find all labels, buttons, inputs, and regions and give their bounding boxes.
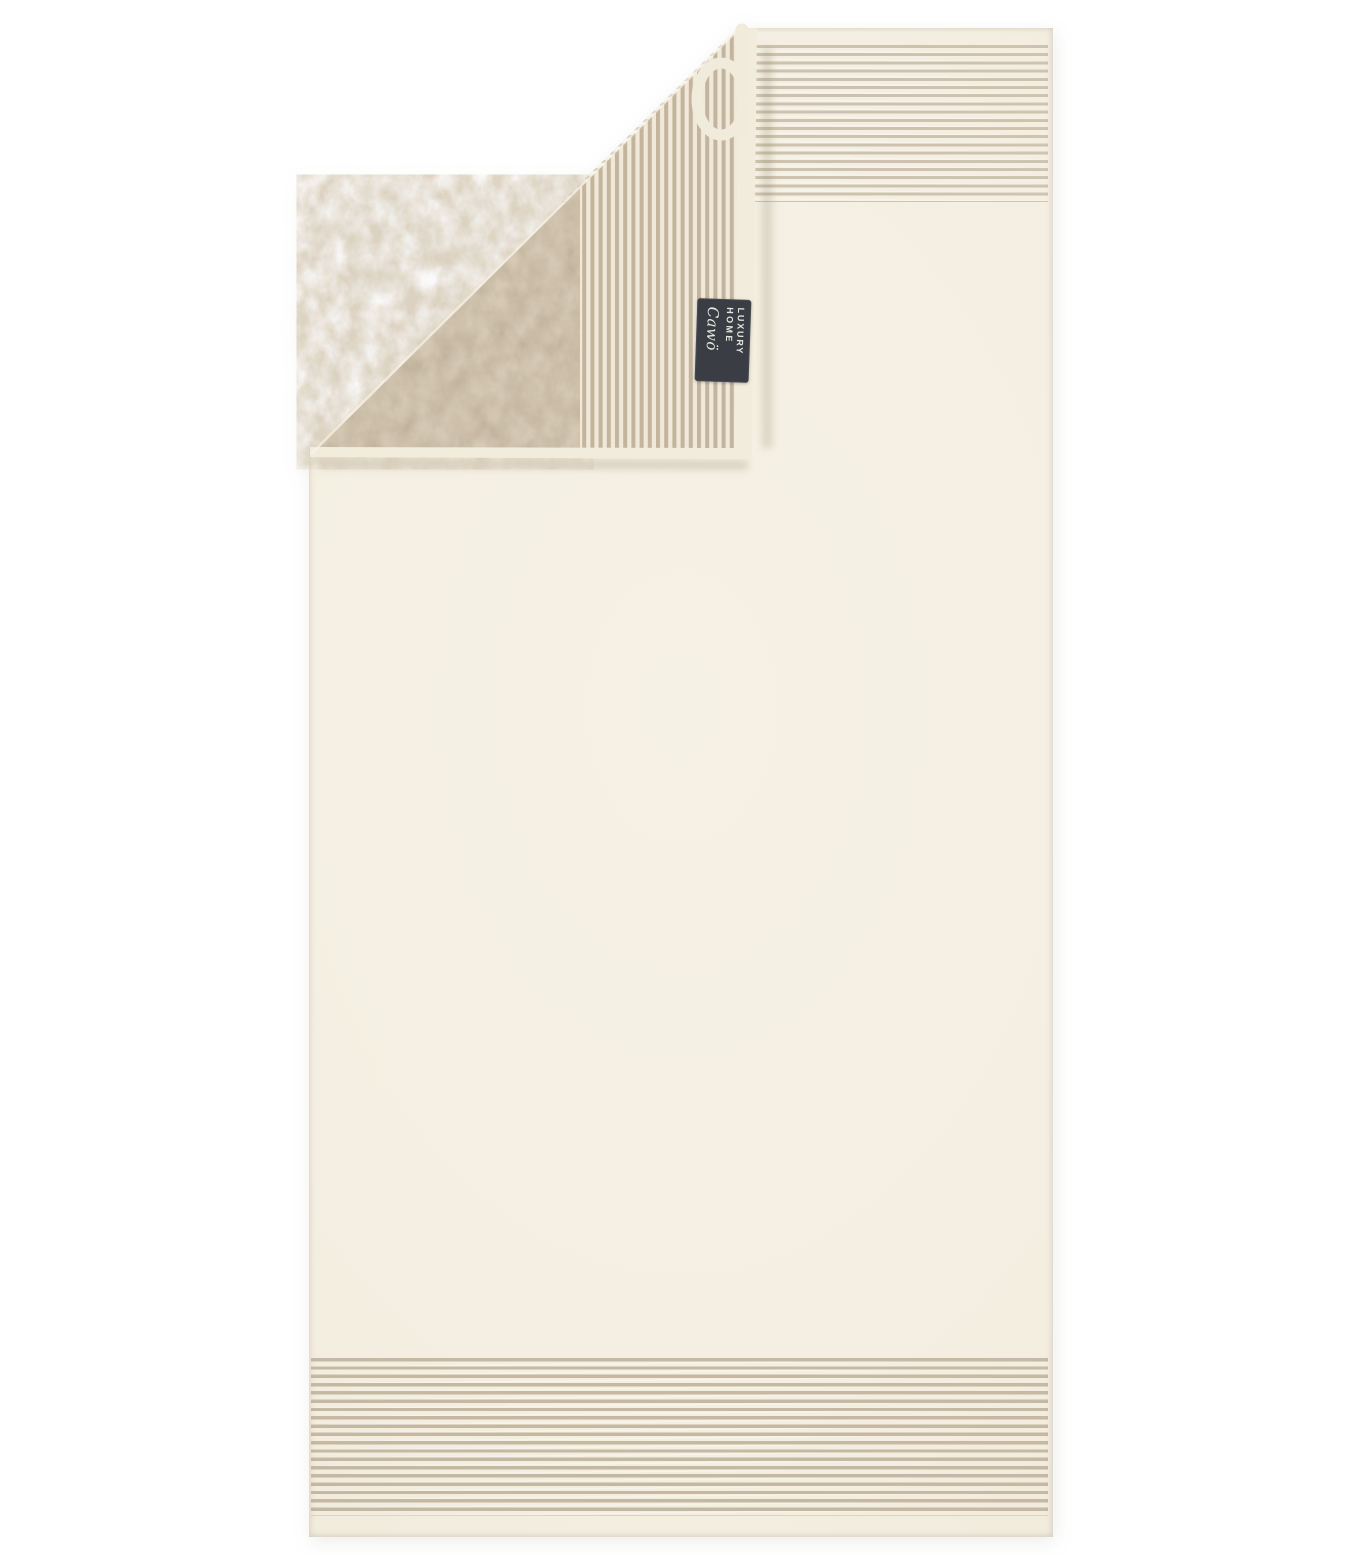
towel-front — [309, 28, 1053, 1537]
towel-top-border — [309, 45, 1048, 202]
product-photo: LUXURY HOME Cawö — [0, 0, 1360, 1555]
brand-tag-text: LUXURY HOME Cawö — [695, 298, 752, 383]
brand-tag-logo: Cawö — [702, 306, 722, 382]
brand-tag: LUXURY HOME Cawö — [695, 298, 752, 383]
towel: LUXURY HOME Cawö — [0, 0, 1360, 1555]
towel-bottom-border — [311, 1358, 1048, 1516]
